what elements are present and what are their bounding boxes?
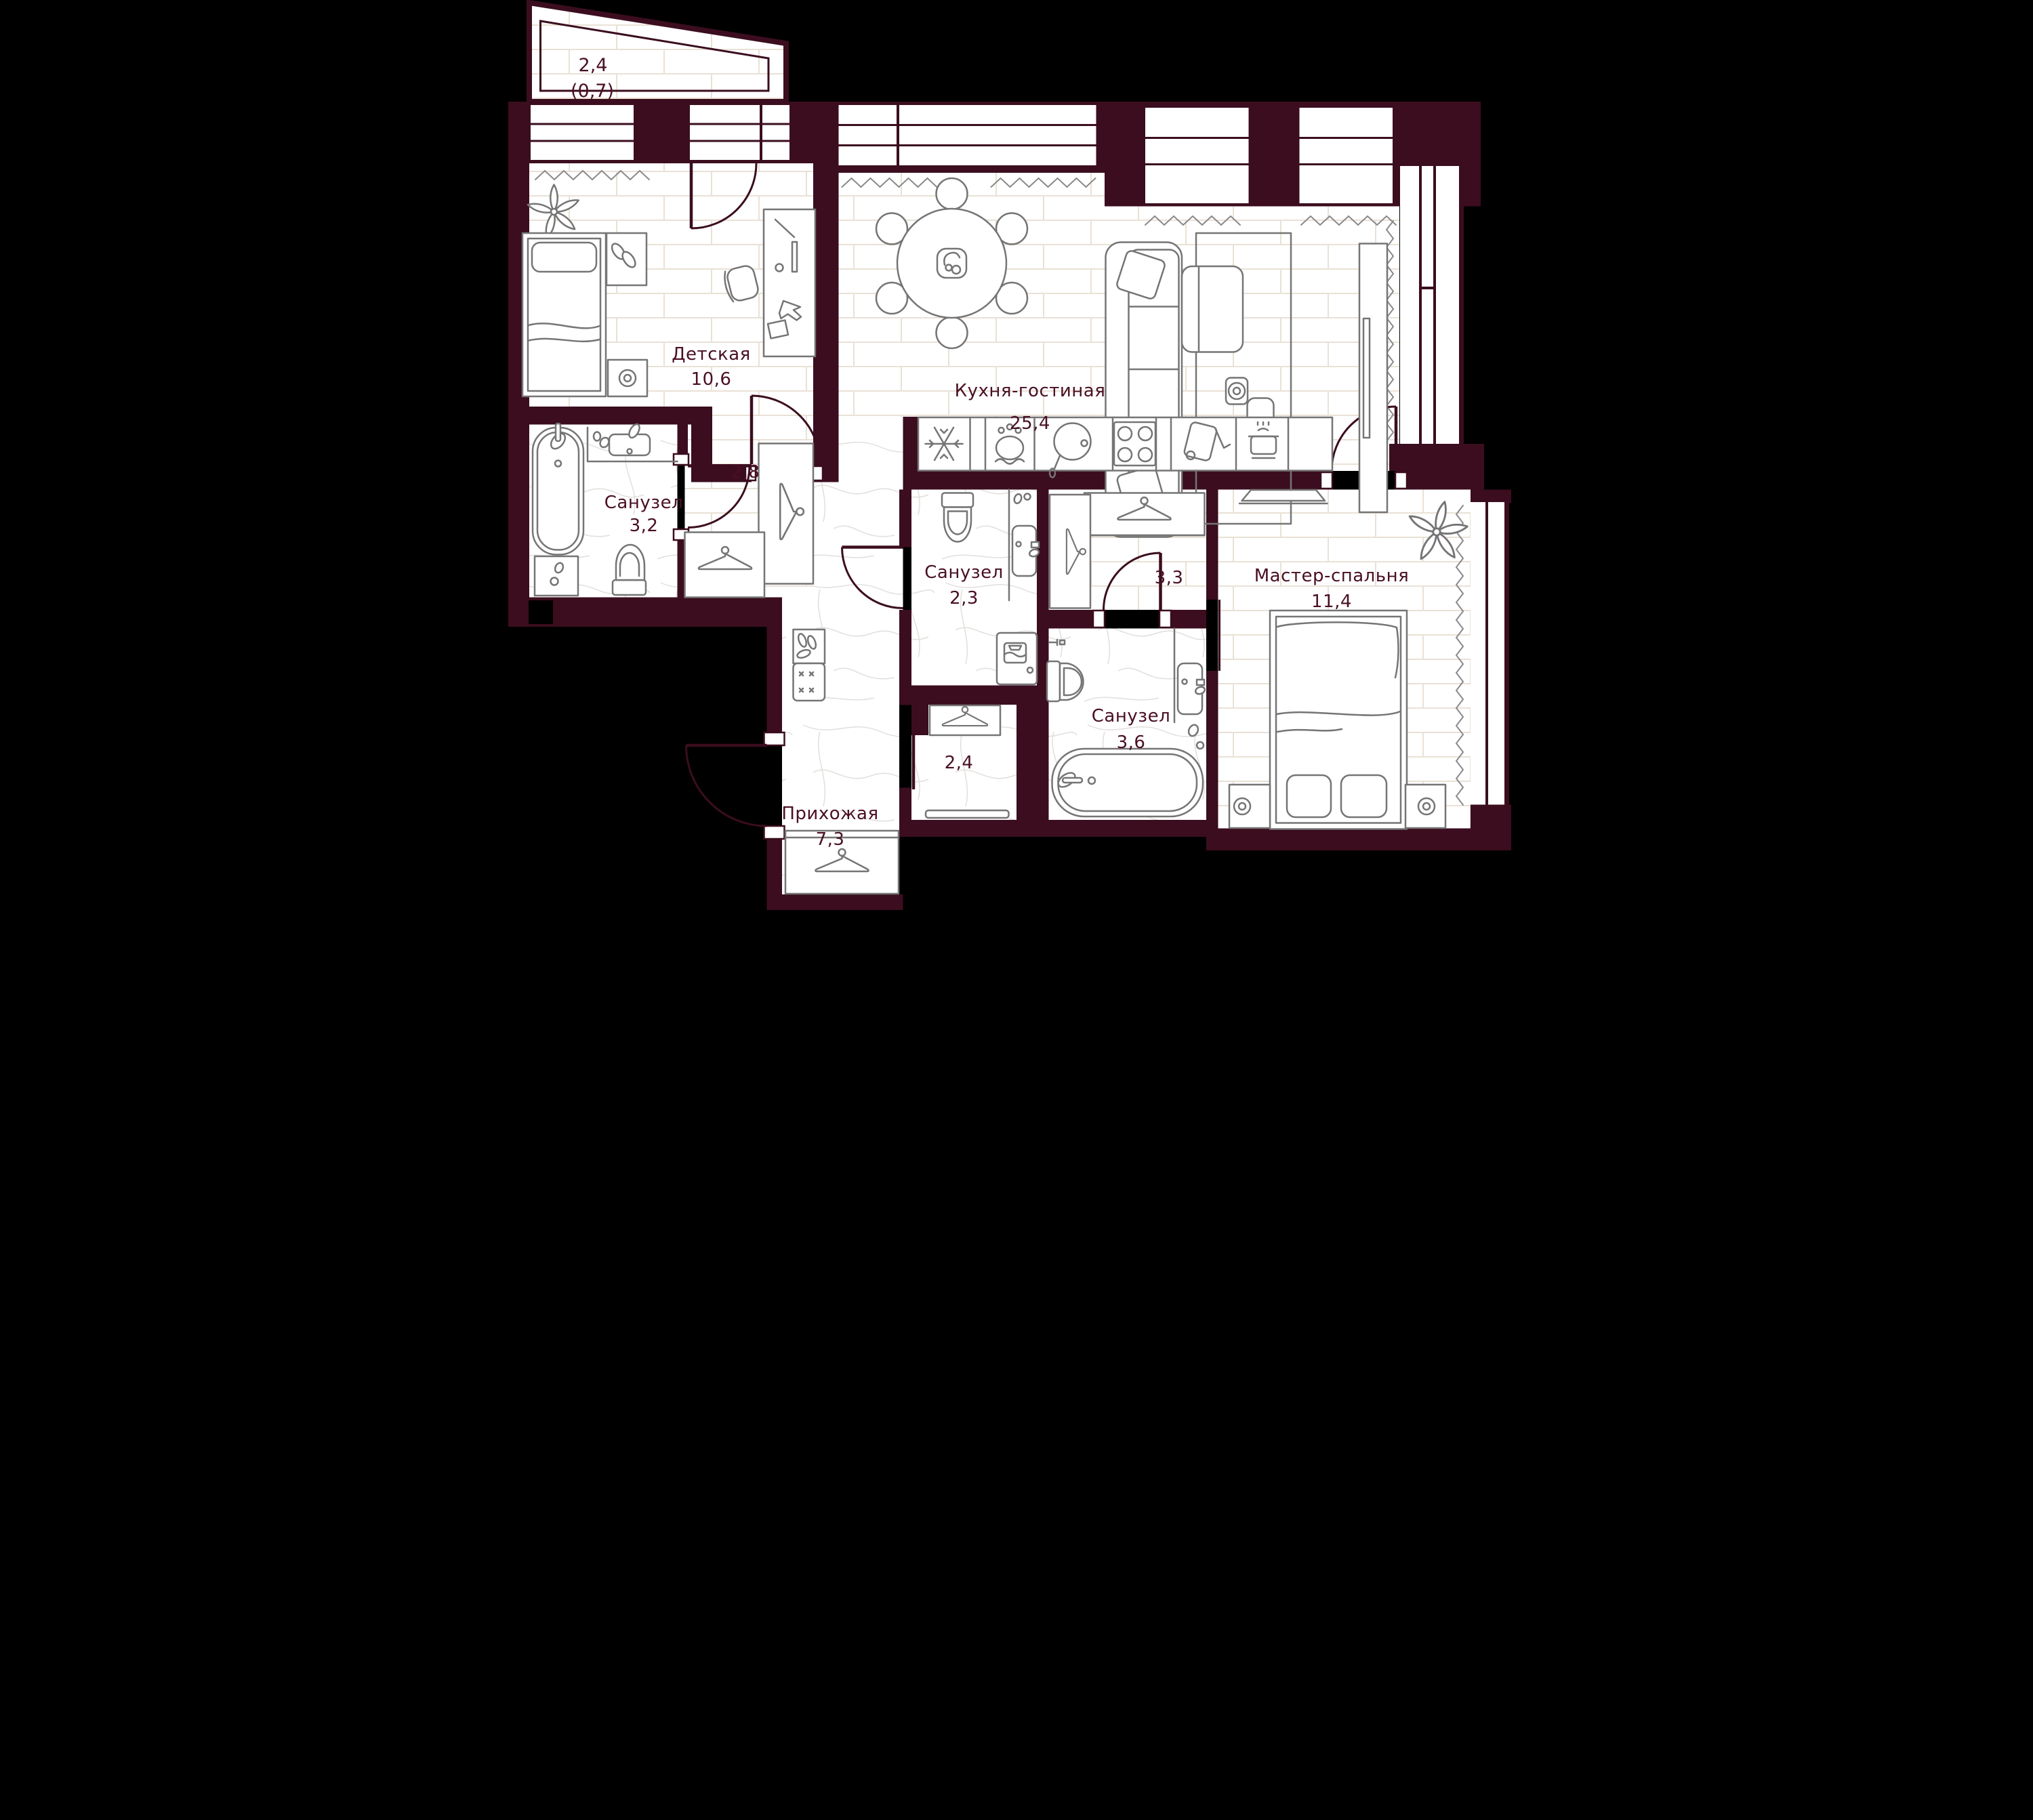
- wardrobe-low-icon: [685, 533, 765, 598]
- kitchen-living-area-label: 25,4: [1010, 413, 1050, 434]
- detskaya-area-label: 10,6: [691, 369, 732, 390]
- wall-kitchen-south-east: [1396, 471, 1484, 490]
- hallway-mouth-floor: [782, 598, 832, 627]
- bedside-shelf-icon: [607, 233, 646, 285]
- tv-console-icon: [1359, 244, 1387, 513]
- washing-machine-icon: [997, 633, 1037, 684]
- bed-double-icon: [1270, 611, 1407, 829]
- dresser-icon: [608, 360, 647, 396]
- wardrobe-tall-icon: [759, 444, 814, 584]
- window-3: [839, 105, 1096, 165]
- bathroom-left-name-label: Санузел: [604, 493, 683, 513]
- window-5: [1300, 108, 1393, 203]
- detskaya-name-label: Детская: [672, 344, 751, 365]
- hallway-area-label: 7,3: [816, 829, 845, 850]
- shaft: [529, 600, 553, 624]
- window-4: [1145, 108, 1249, 203]
- wall-bay-bottom: [1389, 444, 1484, 471]
- balcony-area-reduced-label: (0,7): [571, 81, 614, 102]
- hallway-name-label: Прихожая: [781, 804, 878, 824]
- wall-detskaya-jog: [691, 425, 712, 482]
- shoe-cabinet-icon: [794, 629, 825, 701]
- balcony-area-label: 2,4: [579, 55, 608, 76]
- closet-west-icon: [1050, 495, 1090, 608]
- bathroom-middle-area-label: 2,3: [949, 588, 979, 608]
- wall-column-west-a: [899, 490, 911, 547]
- bathroom-left-area-label: 3,2: [630, 516, 659, 536]
- bath-cabinet-icon: [535, 556, 578, 596]
- bathtub-icon: [1052, 749, 1204, 816]
- wall-detskaya-east: [813, 163, 839, 482]
- nightstand-icon: [1405, 785, 1445, 828]
- wall-column-bottom: [899, 820, 1046, 837]
- wall-master-south: [1206, 829, 1511, 851]
- wall-hallway-west-top: [767, 627, 783, 745]
- wardrobe-hall-area-label: 3,3: [1155, 568, 1184, 588]
- master-area-label: 11,4: [1311, 592, 1352, 612]
- kitchen-living-name-label: Кухня-гостиная: [955, 381, 1106, 401]
- wall-detskaya-south-a: [508, 407, 712, 425]
- wall-storage-east: [1016, 705, 1037, 820]
- kitchen-counter: [918, 417, 1332, 478]
- pillow-icon: [1341, 775, 1387, 817]
- window-bay-living: [1400, 166, 1460, 444]
- bathroom-master-name-label: Санузел: [1092, 706, 1170, 726]
- closet-north-icon: [1084, 493, 1205, 536]
- desk-icon: [764, 209, 815, 356]
- hall-closet-area-label: 2,8: [731, 462, 760, 482]
- corridor-floor-a: [832, 417, 903, 482]
- wall-master-bay-bottom: [1471, 805, 1511, 829]
- window-2-balcony-door: [690, 105, 789, 160]
- bathroom-middle-name-label: Санузел: [924, 562, 1003, 583]
- floorplan-canvas: 2,4 (0,7) Детская 10,6 Кухня-гостиная 25…: [508, 0, 1525, 910]
- wall-column-east: [1037, 490, 1049, 821]
- wall-bath-master-south: [1034, 820, 1206, 837]
- window-1: [531, 105, 634, 160]
- pillow-icon: [1287, 775, 1331, 817]
- storage-area-label: 2,4: [945, 753, 974, 773]
- toilet-icon: [942, 493, 973, 542]
- bathroom-master-area-label: 3,6: [1117, 732, 1146, 753]
- nightstand-icon: [1229, 785, 1270, 828]
- wall-master-west-bottom: [1206, 671, 1218, 829]
- wall-master-west-top: [1206, 490, 1218, 600]
- bathtub-icon: [533, 423, 583, 555]
- wall-hallway-south: [767, 894, 903, 910]
- wall-kitchen-pier: [903, 417, 919, 471]
- floorplan-svg: 2,4 (0,7) Детская 10,6 Кухня-гостиная 25…: [508, 0, 1525, 910]
- bed-single-icon: [522, 233, 606, 396]
- master-name-label: Мастер-спальня: [1254, 566, 1410, 586]
- wall-23-24-divider: [899, 686, 1046, 705]
- wall-master-opening-line: [1218, 600, 1220, 671]
- wall-master-bay-top: [1471, 490, 1511, 503]
- console-table-icon: [1239, 490, 1328, 503]
